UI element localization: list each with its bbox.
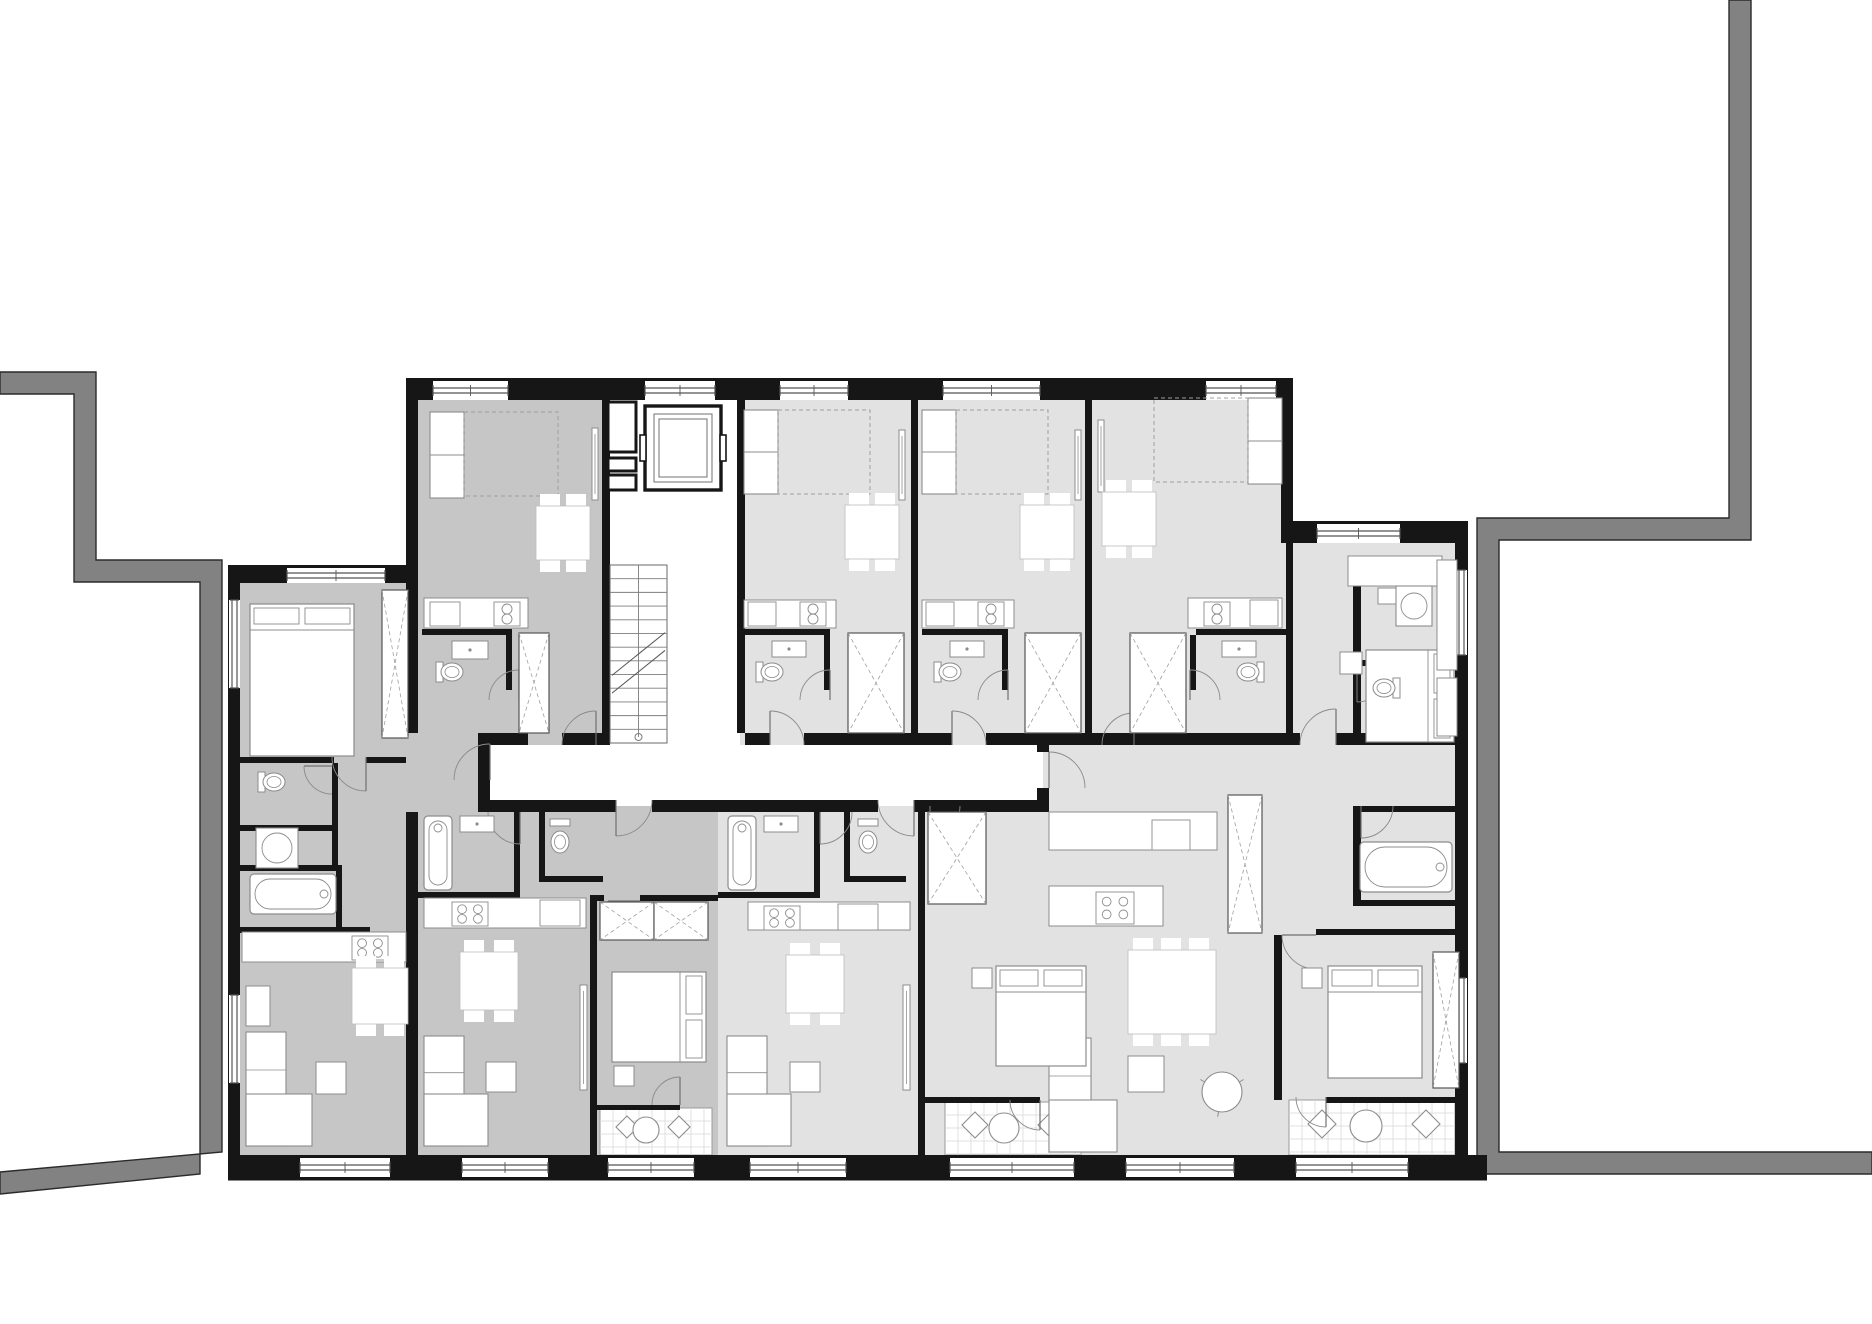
double-bed: [250, 604, 354, 756]
kitchen-sink: [926, 602, 954, 626]
wall: [1196, 629, 1286, 635]
nightstand: [1302, 968, 1322, 988]
balcony-table: [633, 1117, 659, 1143]
wardrobe: [1433, 952, 1459, 1088]
wall: [1353, 900, 1455, 906]
bathtub: [250, 874, 336, 914]
toilet: [761, 663, 783, 681]
wall: [914, 800, 1049, 812]
elevator-door-jamb: [720, 435, 726, 461]
wall: [1190, 635, 1196, 690]
faucet-dot: [779, 822, 782, 825]
pillow: [254, 608, 299, 624]
toilet: [1373, 679, 1395, 697]
wall: [422, 629, 512, 635]
tall-cabinet: [1437, 560, 1457, 670]
toilet-tank: [858, 819, 878, 826]
pillow: [1378, 970, 1418, 986]
sofa-chaise: [1049, 1100, 1117, 1152]
toilet-tank: [550, 819, 570, 826]
wall: [590, 895, 604, 901]
wall: [406, 378, 418, 583]
wall: [1037, 745, 1049, 752]
kitchen-sink: [540, 900, 580, 926]
faucet-dot: [965, 647, 968, 650]
wall: [506, 635, 512, 690]
pillow: [1000, 970, 1038, 986]
right-neighbor-building: [1477, 0, 1872, 1174]
wall: [1353, 806, 1455, 812]
pouf: [1202, 1072, 1242, 1112]
wall: [918, 806, 925, 1155]
faucet-dot: [475, 822, 478, 825]
cooktop-frame: [764, 906, 800, 930]
wall: [1286, 543, 1293, 745]
toilet: [1237, 663, 1259, 681]
toilet: [551, 831, 569, 853]
wall: [234, 757, 334, 763]
kitchen-sink: [430, 602, 460, 626]
wall: [844, 876, 906, 882]
wall: [844, 812, 850, 882]
wall: [718, 892, 820, 898]
wall: [1316, 929, 1461, 935]
wall: [1085, 733, 1286, 745]
dining-table: [845, 505, 899, 559]
wall: [925, 1097, 1040, 1103]
kitchen-sink: [748, 602, 776, 626]
wall: [1274, 935, 1282, 1100]
bathtub: [1360, 842, 1452, 892]
dining-table: [460, 952, 518, 1010]
wall: [545, 876, 603, 882]
floor-plan-page: [0, 0, 1872, 1324]
shaft-box: [608, 475, 636, 490]
toilet: [939, 663, 961, 681]
cooktop-frame: [1096, 892, 1134, 924]
wall: [652, 800, 878, 812]
faucet-dot: [468, 648, 471, 651]
balcony-table: [989, 1113, 1019, 1143]
shaft-box: [608, 402, 636, 452]
wall: [514, 812, 520, 898]
wall: [911, 400, 918, 745]
toilet: [263, 773, 285, 791]
left-neighbor-building: [0, 372, 222, 1194]
pillow: [686, 976, 702, 1014]
wall: [590, 900, 597, 1155]
pillow: [1332, 970, 1372, 986]
wall: [597, 1105, 680, 1110]
dining-table: [786, 955, 844, 1013]
wall: [1326, 1097, 1461, 1103]
wall: [332, 763, 338, 871]
wall: [336, 871, 342, 927]
wall: [418, 892, 520, 898]
window-cut: [1456, 570, 1467, 655]
pillow: [686, 1020, 702, 1058]
window-cut: [229, 995, 240, 1083]
desk: [1348, 556, 1442, 586]
kitchen-sink: [838, 904, 878, 930]
wall: [478, 800, 616, 812]
dining-table: [352, 968, 408, 1024]
bathtub: [424, 816, 452, 890]
nightstand: [1340, 652, 1362, 674]
coffee-table: [790, 1062, 820, 1092]
kitchen-counter: [1049, 812, 1217, 850]
sideboard: [246, 986, 270, 1026]
wall: [814, 812, 820, 898]
wall: [406, 378, 1293, 400]
nightstand: [614, 1066, 634, 1086]
cooktop-frame: [452, 902, 488, 926]
wall: [640, 895, 718, 901]
wall: [366, 757, 406, 763]
wall: [539, 812, 545, 882]
dining-table: [1102, 492, 1156, 546]
elevator-door-jamb: [640, 435, 646, 461]
sofa-chaise: [246, 1094, 312, 1146]
wall: [1037, 788, 1049, 812]
balcony-table: [1350, 1110, 1382, 1142]
sofa-chaise: [727, 1094, 791, 1146]
kitchen-sink: [1250, 600, 1278, 626]
dining-table: [1020, 505, 1074, 559]
wall: [804, 733, 952, 745]
sofa-chaise: [424, 1094, 488, 1146]
kitchen-island-sink: [1152, 820, 1190, 850]
wall: [922, 629, 1008, 635]
coffee-table: [486, 1062, 516, 1092]
pillow: [1044, 970, 1082, 986]
nightstand: [972, 968, 992, 988]
wall: [1286, 733, 1300, 745]
pillow: [305, 608, 350, 624]
tall-cabinet: [1437, 678, 1457, 736]
coffee-table: [1128, 1056, 1164, 1092]
wall: [986, 733, 1037, 745]
wall: [824, 635, 830, 690]
dining-table-large: [1128, 950, 1216, 1034]
apartment-left-hall: [406, 733, 490, 812]
wall: [1037, 733, 1085, 745]
faucet-dot: [787, 647, 790, 650]
wall: [1085, 390, 1092, 745]
dining-table: [536, 506, 590, 560]
wall: [744, 629, 830, 635]
armchair: [316, 1062, 346, 1094]
wall: [1002, 635, 1008, 690]
toilet: [441, 663, 463, 681]
window-cut: [229, 600, 240, 688]
toilet: [859, 831, 877, 853]
wall: [745, 733, 770, 745]
shaft-box: [608, 458, 636, 471]
bathtub: [728, 816, 756, 890]
wall: [1281, 378, 1293, 543]
faucet-dot: [1237, 647, 1240, 650]
floor-plan-canvas: [0, 0, 1872, 1324]
